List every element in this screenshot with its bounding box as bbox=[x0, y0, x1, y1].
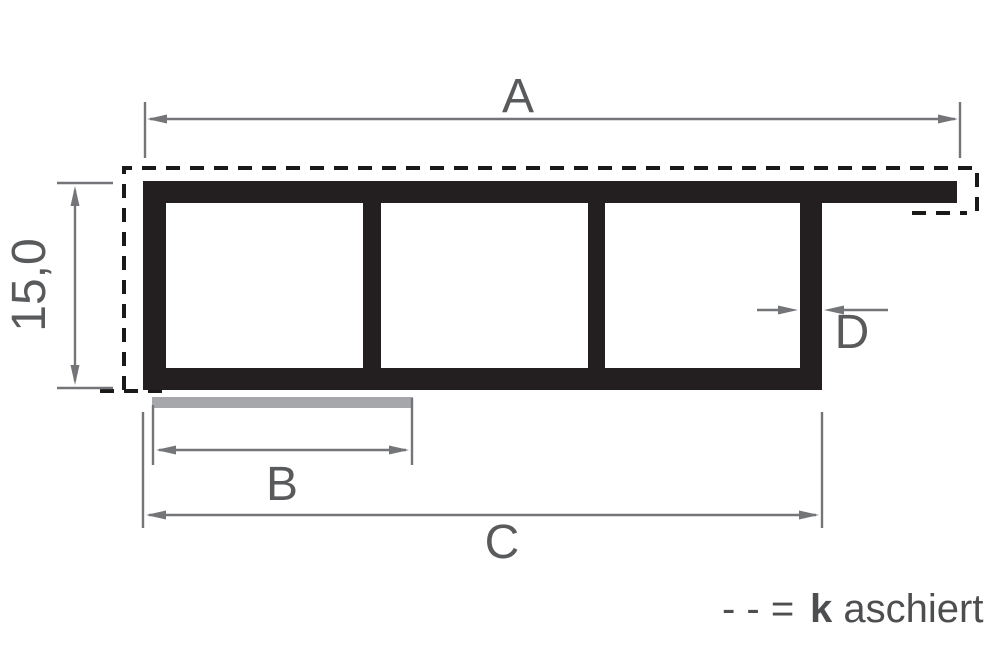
arrowhead-left bbox=[156, 446, 176, 455]
foil-overlay-bar bbox=[152, 397, 413, 408]
profile-flange bbox=[822, 181, 957, 203]
legend-term-bold-initial: k bbox=[810, 587, 833, 631]
profile-chamber-2 bbox=[381, 203, 588, 368]
dimension-b: B bbox=[153, 398, 412, 511]
profile-cross-section-svg: A 15,0 B C bbox=[0, 0, 1007, 666]
legend-dash-symbol: - - = bbox=[722, 587, 794, 631]
legend: - - = k aschiert bbox=[722, 587, 983, 631]
arrowhead-right bbox=[799, 511, 819, 520]
arrowhead-left bbox=[146, 511, 166, 520]
dimension-c: C bbox=[143, 412, 822, 569]
dimension-a-label: A bbox=[502, 70, 534, 123]
profile-chamber-1 bbox=[166, 203, 363, 368]
legend-term-rest: aschiert bbox=[843, 587, 983, 631]
dimension-height-label: 15,0 bbox=[3, 238, 56, 331]
dimension-a: A bbox=[145, 70, 960, 158]
legend-line: - - = k aschiert bbox=[722, 587, 983, 631]
arrowhead-right bbox=[389, 446, 409, 455]
arrowhead-top bbox=[71, 186, 80, 206]
dimension-d-label: D bbox=[835, 306, 870, 359]
arrowhead-bottom bbox=[71, 365, 80, 385]
profile-chamber-3 bbox=[605, 203, 800, 368]
drawing-canvas: A 15,0 B C bbox=[0, 0, 1007, 666]
dimension-c-label: C bbox=[485, 516, 520, 569]
dimension-b-label: B bbox=[266, 458, 298, 511]
arrowhead-left bbox=[147, 115, 167, 124]
dimension-height: 15,0 bbox=[3, 183, 113, 388]
arrowhead-right bbox=[938, 115, 958, 124]
